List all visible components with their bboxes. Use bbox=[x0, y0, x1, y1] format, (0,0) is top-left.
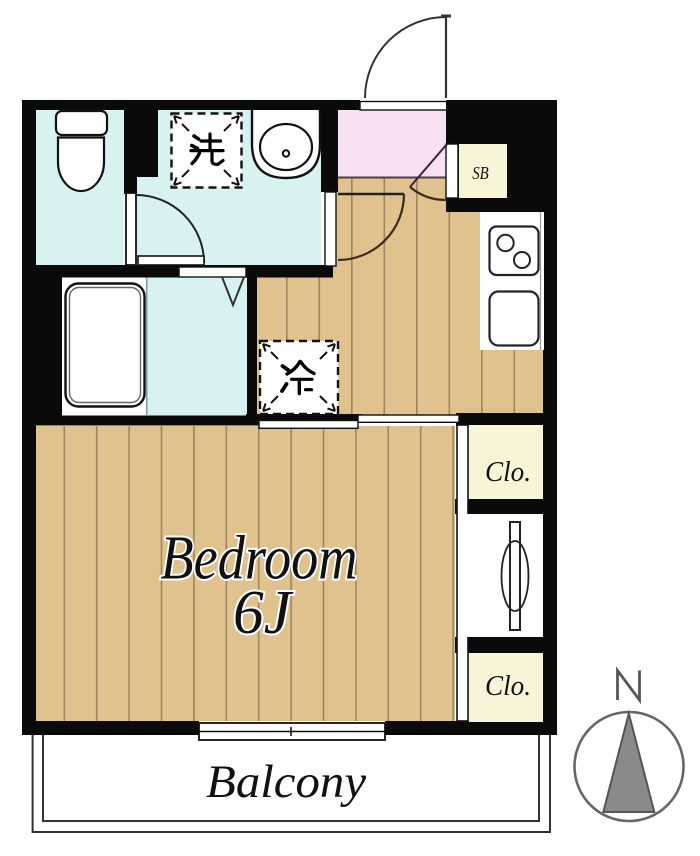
svg-text:Clo.: Clo. bbox=[485, 670, 531, 702]
svg-text:6J: 6J bbox=[233, 579, 293, 647]
svg-text:Clo.: Clo. bbox=[485, 456, 531, 488]
svg-text:Balcony: Balcony bbox=[206, 756, 366, 808]
svg-text:SB: SB bbox=[472, 163, 489, 183]
